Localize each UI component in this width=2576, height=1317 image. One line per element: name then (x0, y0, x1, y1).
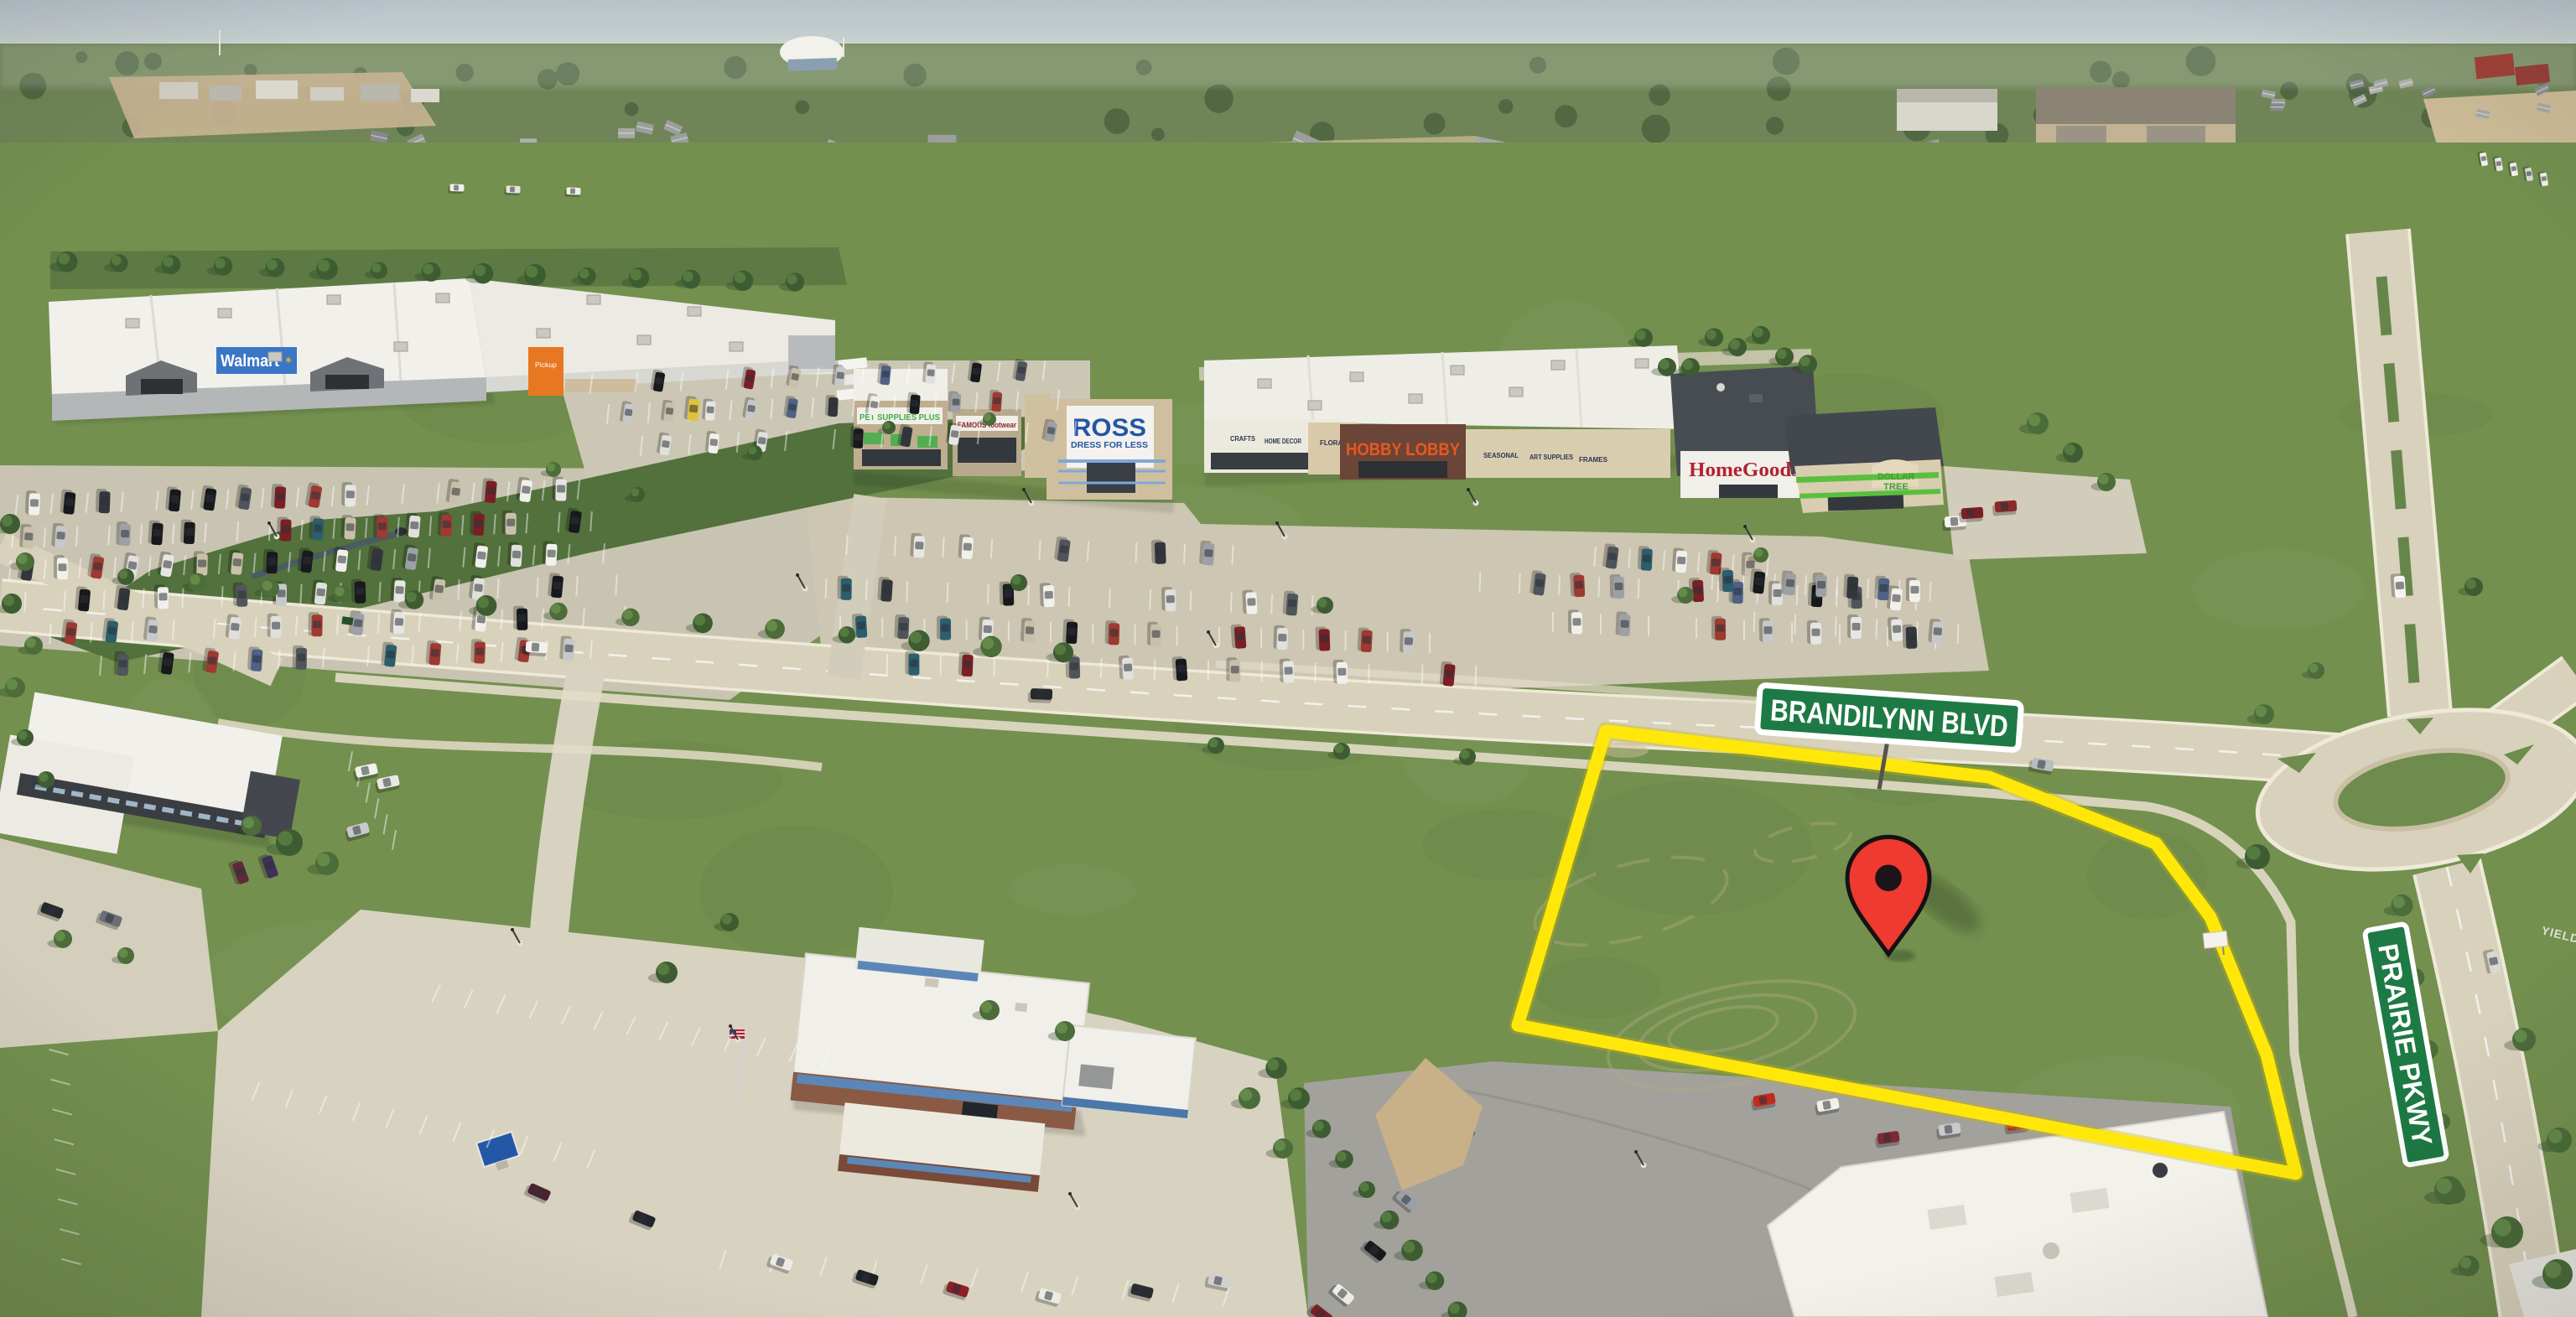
parking-stripe (866, 580, 867, 600)
car (308, 612, 322, 636)
car (96, 489, 111, 514)
rooftop-unit (126, 319, 139, 328)
parking-stripe (576, 576, 577, 596)
car (1242, 589, 1257, 614)
car (470, 639, 486, 664)
car (877, 363, 891, 386)
tree (0, 514, 20, 534)
parking-stripe (1559, 575, 1560, 595)
walmart-spark-icon: ✶ (284, 354, 293, 366)
car (390, 609, 406, 635)
ross-sign: ROSS (1072, 414, 1146, 442)
car (1161, 587, 1176, 611)
car (351, 579, 366, 604)
car (1226, 657, 1240, 682)
car (683, 396, 700, 422)
rooftop-unit (1409, 394, 1422, 403)
red-roof-building (2475, 54, 2515, 80)
car (502, 511, 517, 535)
dollar-tree-building: DOLLAR TREE (1784, 407, 1944, 513)
car (1315, 626, 1330, 651)
parking-stripe (143, 589, 143, 609)
rooftop-unit (1451, 366, 1464, 375)
car (1172, 656, 1188, 682)
car (481, 478, 497, 503)
distant-tree (795, 100, 809, 114)
distant-tree (1555, 105, 1577, 127)
car (309, 516, 325, 541)
hobby-dept-sign-seasonal: SEASONAL (1483, 452, 1519, 459)
car (542, 541, 558, 566)
car (1672, 547, 1688, 573)
parking-stripe (1184, 544, 1185, 564)
car (838, 576, 852, 600)
parking-stripe (826, 578, 827, 599)
car (19, 524, 35, 549)
distant-building (210, 86, 241, 101)
car (1570, 573, 1585, 598)
car (1439, 661, 1456, 686)
grass-patch (1535, 957, 1661, 1019)
car (702, 398, 716, 421)
parking-stripe (1232, 545, 1233, 565)
parking-stripe (991, 539, 992, 559)
parking-stripe (615, 575, 616, 595)
parking-stripe (497, 578, 498, 599)
car (405, 512, 421, 537)
car (513, 606, 527, 630)
car (910, 533, 926, 558)
distant-tree (1424, 113, 1446, 135)
car (267, 614, 282, 638)
car (850, 426, 864, 449)
parking-stripe (846, 535, 847, 555)
rooftop-unit (218, 309, 231, 318)
parking-stripe (1717, 582, 1718, 602)
distant-building (411, 89, 439, 102)
car (1062, 619, 1078, 644)
parking-stripe (379, 582, 380, 602)
car (1021, 618, 1036, 643)
car (1610, 574, 1624, 599)
car (227, 549, 244, 575)
parking-stripe (1312, 595, 1313, 615)
car (1151, 540, 1166, 565)
grass-patch (1567, 781, 1811, 915)
car (906, 392, 921, 415)
dollar-tree-sign-line1: DOLLAR (1877, 472, 1914, 482)
car (1711, 616, 1726, 640)
car (504, 185, 520, 195)
car (705, 431, 720, 454)
parking-stripe (1028, 585, 1029, 605)
hobby-dept-sign-artsupplies: ART SUPPLIES (1529, 454, 1574, 461)
car (437, 512, 452, 537)
car (1807, 620, 1821, 645)
parking-stripe (221, 586, 222, 606)
car (1847, 614, 1862, 639)
parking-stripe (64, 591, 65, 611)
car (114, 651, 129, 677)
hobby-dept-sign-frames: FRAMES (1579, 456, 1608, 464)
car (1812, 573, 1827, 597)
car (548, 573, 564, 598)
walmart-pickup-label: Pickup (535, 361, 558, 369)
car (390, 578, 406, 603)
car (470, 511, 486, 536)
car (1147, 622, 1161, 646)
parking-stripe (1797, 585, 1798, 605)
parking-stripe (906, 581, 907, 601)
car (1282, 590, 1298, 615)
hobby-lobby-sign: HOBBY LOBBY (1346, 440, 1460, 459)
parking-stripe (458, 579, 459, 599)
rooftop-unit (1509, 387, 1523, 397)
rooftop-unit (688, 307, 701, 316)
house (2270, 103, 2283, 111)
parking-stripe (1109, 589, 1110, 609)
car (1332, 660, 1348, 685)
car (332, 547, 349, 573)
car (1400, 629, 1415, 653)
car (552, 476, 567, 500)
car (311, 579, 328, 605)
car (193, 551, 208, 575)
car (1759, 618, 1774, 642)
car (293, 646, 307, 670)
parking-stripe (943, 537, 943, 557)
parking-stripe (1929, 582, 1930, 602)
car (1638, 546, 1653, 571)
distant-building (159, 82, 198, 99)
car (51, 523, 67, 548)
car (448, 184, 464, 194)
parking-stripe (1836, 577, 1837, 597)
car (225, 614, 241, 640)
parking-stripe (1271, 594, 1272, 614)
car (1040, 583, 1055, 608)
parking-stripe (1876, 619, 1877, 639)
distant-building (361, 84, 399, 101)
car (1888, 616, 1903, 641)
distant-tree (1642, 115, 1670, 143)
hobby-lobby-building: CRAFTS HOME DECOR FLORAL HOBBY LOBBY SEA… (1204, 345, 1687, 486)
car (958, 651, 974, 677)
rooftop-unit (436, 293, 449, 303)
grass-patch (1008, 864, 1135, 915)
car (54, 555, 68, 579)
walmart-pickup-tower (528, 347, 563, 396)
parking-stripe (1805, 575, 1806, 595)
parking-stripe (1069, 587, 1070, 607)
car (271, 484, 287, 509)
parking-stripe (1191, 591, 1192, 611)
rooftop-unit (587, 295, 600, 304)
car (1105, 620, 1120, 645)
parking-stripe (1039, 540, 1040, 560)
distant-tree (1766, 117, 1784, 134)
car (165, 486, 181, 511)
hobby-dept-sign-crafts: CRAFTS (1230, 435, 1256, 443)
parking-stripe (1135, 542, 1136, 563)
car (1280, 658, 1295, 683)
ross-tagline: DRESS FOR LESS (1071, 441, 1148, 450)
car (825, 395, 839, 417)
distant-tree (1151, 127, 1165, 141)
dollar-tree-sign-line2: TREE (1883, 482, 1909, 492)
car (937, 616, 951, 640)
grass-patch (2192, 549, 2365, 630)
car (373, 514, 387, 538)
rooftop-unit (637, 335, 651, 345)
parking-stripe (1958, 624, 1959, 644)
rooftop-unit (327, 295, 340, 304)
car (1874, 576, 1889, 601)
car (1749, 568, 1766, 594)
car (1273, 625, 1288, 651)
parking-stripe (1794, 614, 1795, 635)
car (905, 651, 919, 676)
car (60, 489, 76, 514)
rooftop-unit (730, 342, 743, 351)
car (522, 640, 548, 656)
car (154, 584, 169, 609)
car (894, 614, 909, 640)
car (180, 519, 195, 544)
car (1230, 624, 1246, 649)
parking-stripe (182, 588, 183, 608)
car (1843, 573, 1858, 599)
parking-stripe (1519, 573, 1520, 594)
car (262, 549, 278, 574)
rooftop-unit (394, 342, 408, 351)
parking-stripe (1639, 578, 1639, 599)
car (1781, 570, 1797, 595)
rooftop-unit (537, 329, 550, 338)
car (341, 482, 356, 506)
distant-tree (625, 102, 639, 117)
homegoods-sign: HomeGoods (1689, 459, 1800, 481)
car (1928, 619, 1944, 644)
parking-stripe (1754, 612, 1755, 632)
car (425, 640, 441, 666)
car (948, 391, 961, 412)
car (1199, 541, 1215, 566)
parking-stripe (300, 584, 301, 604)
street-sign-back (341, 616, 353, 625)
car (564, 187, 580, 197)
car (989, 390, 1003, 412)
aerial-photo: Walmart ✶ Pickup PET SUPPLIES PLUS FAMOU… (0, 0, 2576, 1317)
distant-building (310, 87, 344, 101)
parking-stripe (537, 578, 538, 598)
car (958, 534, 974, 559)
rooftop-unit (1258, 379, 1271, 388)
car (877, 577, 893, 602)
distant-tree (1498, 99, 1514, 114)
parking-stripe (103, 589, 104, 609)
house (618, 128, 635, 138)
parking-stripe (1231, 593, 1232, 613)
car (1358, 627, 1373, 652)
car (148, 520, 164, 545)
rooftop-unit (1635, 359, 1649, 368)
rooftop-unit (1308, 401, 1322, 410)
distant-tree (1204, 84, 1233, 113)
car (1959, 507, 1984, 523)
parking-stripe (895, 537, 896, 557)
car (25, 490, 40, 516)
parking-stripe (1150, 589, 1150, 609)
parking-stripe (1867, 578, 1868, 599)
parking-stripe (1836, 617, 1836, 637)
car (1615, 611, 1630, 636)
car (75, 586, 91, 611)
car (559, 635, 575, 661)
parking-stripe (948, 583, 948, 603)
distant-tree (1104, 108, 1130, 134)
car (1028, 688, 1053, 703)
parking-stripe (1088, 542, 1088, 562)
car (381, 641, 397, 667)
parking-stripe (1480, 572, 1481, 592)
parking-stripe (988, 584, 989, 604)
car (1992, 500, 2018, 516)
car (233, 582, 248, 606)
hobby-dept-sign-homedecor: HOME DECOR (1265, 438, 1301, 445)
car (1902, 625, 1917, 650)
parking-stripe (24, 592, 25, 612)
car (1906, 578, 1920, 602)
car (247, 646, 263, 671)
rooftop-unit (1551, 360, 1565, 370)
car (116, 521, 131, 546)
car (1719, 568, 1734, 592)
car (1568, 609, 1582, 634)
distant-tree (1649, 84, 1670, 106)
distant-building (256, 80, 298, 99)
parking-stripe (1917, 621, 1918, 641)
car (340, 515, 356, 540)
car (1119, 655, 1135, 680)
parking-stripe (1598, 577, 1599, 597)
car (143, 616, 160, 642)
car (922, 361, 937, 384)
rooftop-unit (268, 352, 282, 361)
car (2390, 573, 2406, 599)
rooftop-unit (1350, 372, 1363, 381)
car (507, 542, 523, 567)
car (1768, 581, 1783, 605)
